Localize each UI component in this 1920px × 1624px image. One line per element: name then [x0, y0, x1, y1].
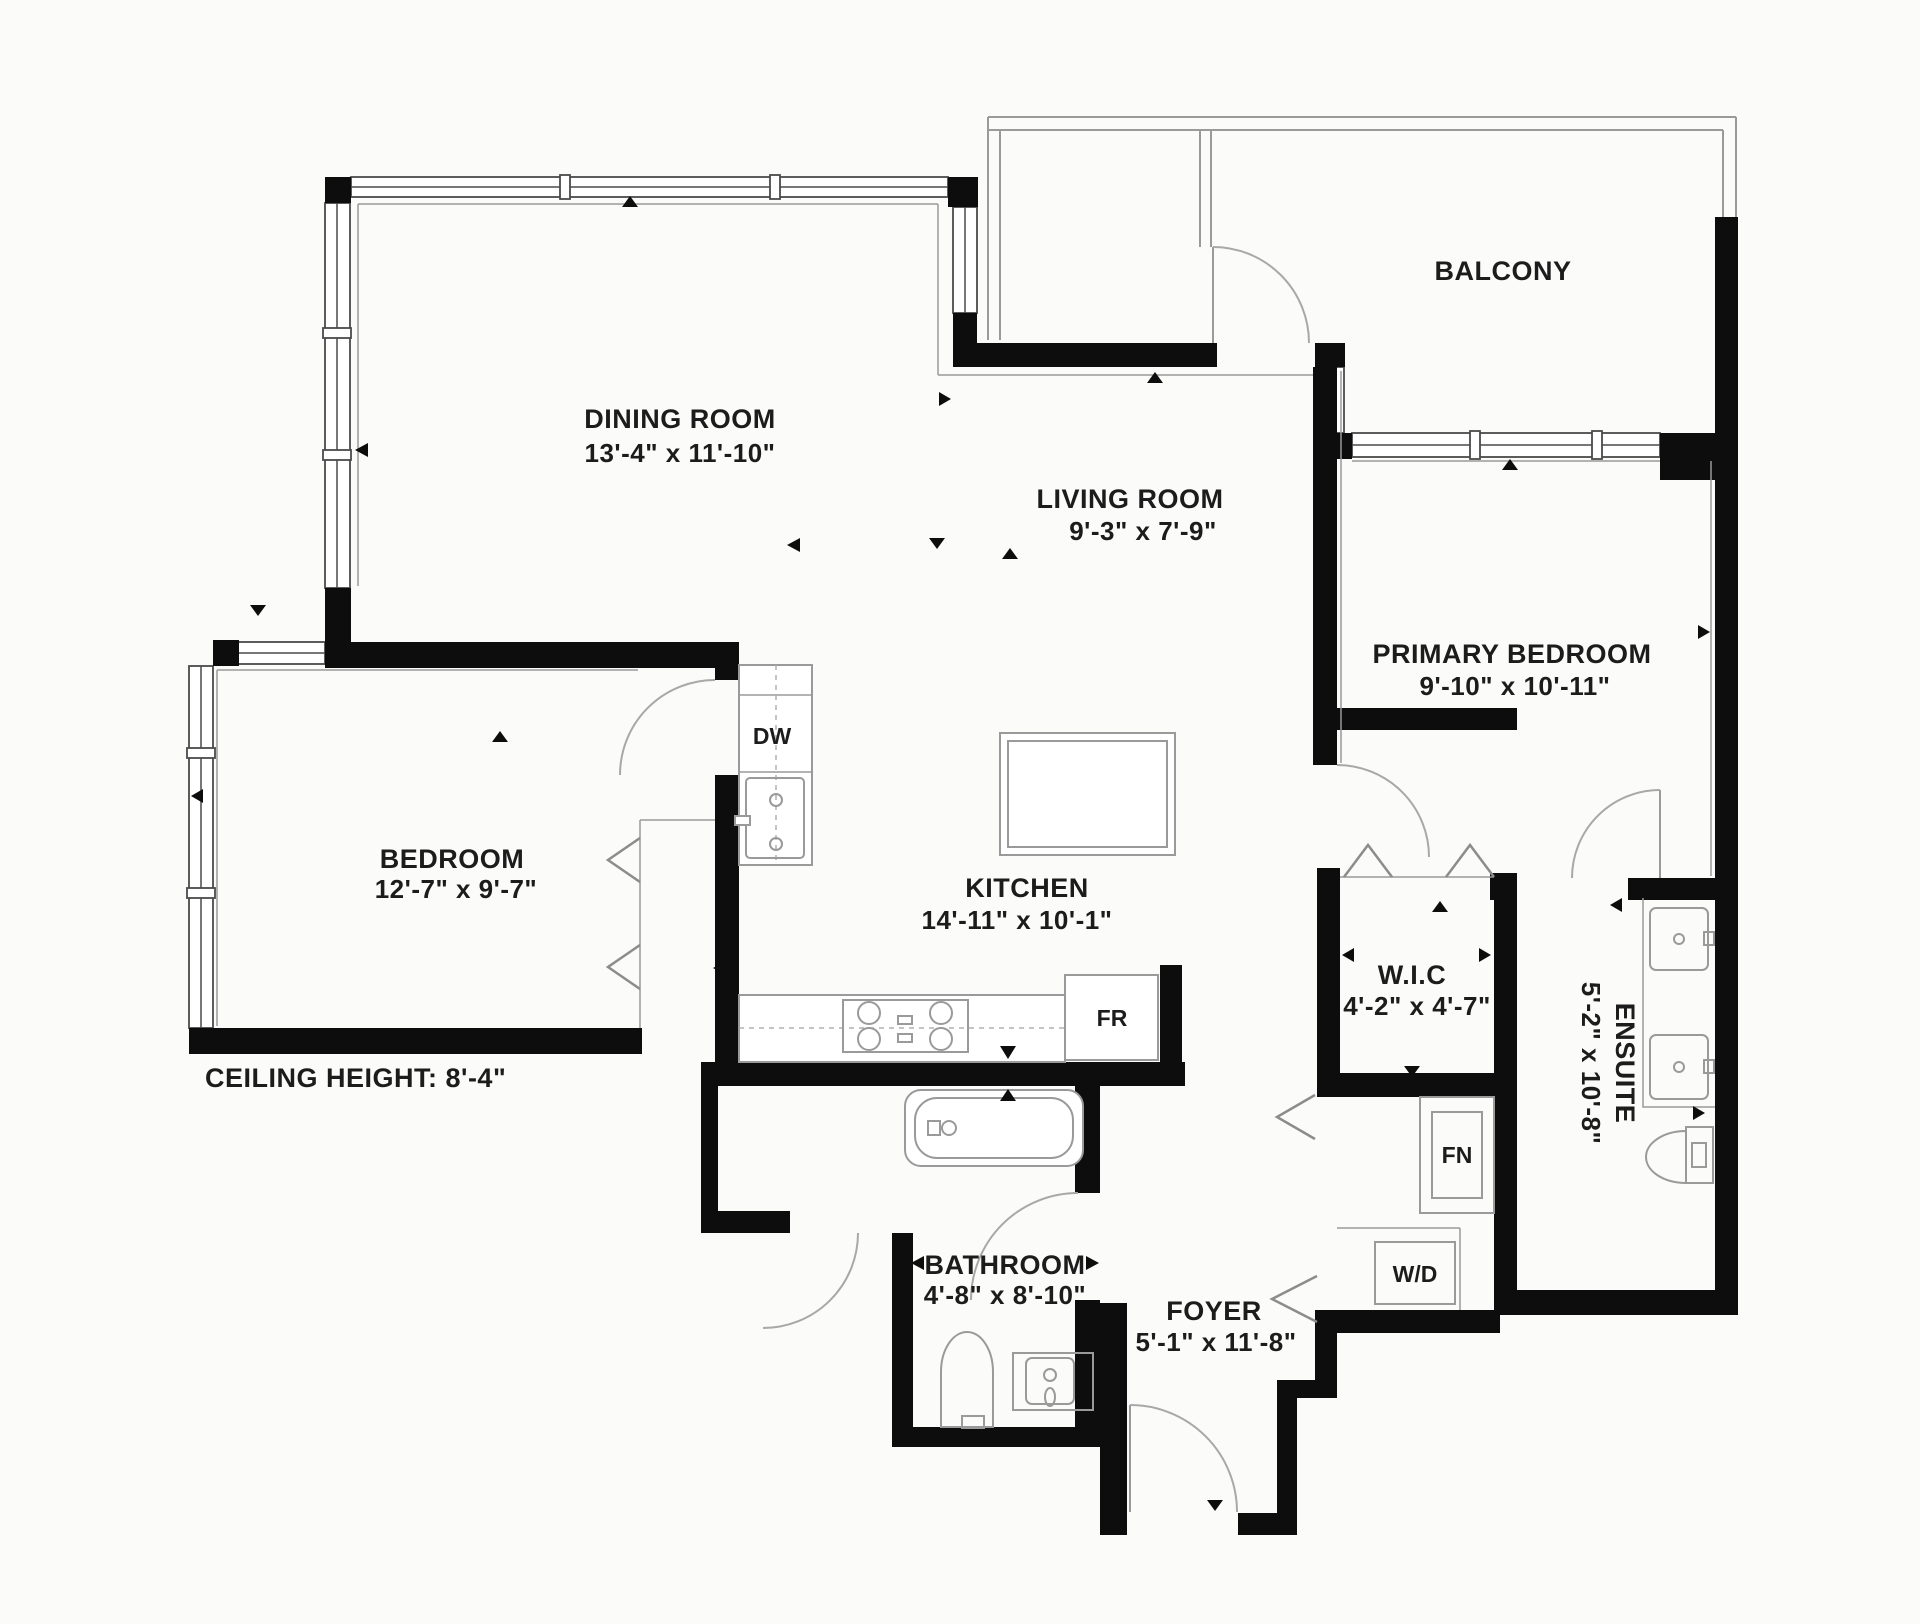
bedroom-closet-door-icon — [608, 838, 640, 882]
fridge-label: FR — [1097, 1005, 1128, 1031]
room-dims-primary-bedroom: 9'-10" x 10'-11" — [1419, 671, 1610, 701]
ensuite-door-arc — [1572, 790, 1660, 878]
room-label-primary-bedroom: PRIMARY BEDROOM — [1372, 639, 1651, 669]
room-dims-bedroom: 12'-7" x 9'-7" — [375, 874, 538, 904]
ensuite-fixtures — [1643, 898, 1715, 1183]
floor-plan-page: BALCONY DINING ROOM 13'-4" x 11'-10" LIV… — [0, 0, 1920, 1624]
kitchen-fixtures — [735, 665, 1175, 1062]
room-dims-living: 9'-3" x 7'-9" — [1069, 516, 1217, 546]
bedroom-closet-door-icon — [608, 945, 640, 989]
room-label-wic: W.I.C — [1378, 960, 1447, 990]
room-dims-foyer: 5'-1" x 11'-8" — [1135, 1327, 1296, 1357]
kitchen-island — [1000, 733, 1175, 855]
bedroom-door-arc — [620, 680, 715, 775]
furnace-label: FN — [1442, 1142, 1473, 1168]
room-label-bathroom: BATHROOM — [925, 1250, 1086, 1280]
room-label-dining: DINING ROOM — [584, 404, 776, 434]
balcony-door-arc — [1213, 247, 1309, 343]
entry-door-arc — [1130, 1405, 1237, 1512]
balcony-outline — [988, 117, 1736, 340]
room-dims-kitchen: 14'-11" x 10'-1" — [921, 905, 1112, 935]
primary-bedroom-door-arc — [1337, 765, 1429, 857]
wic-bifold-door-icon — [1446, 845, 1494, 877]
kitchen-faucet-icon — [735, 816, 750, 825]
room-label-balcony: BALCONY — [1435, 256, 1572, 286]
toilet-icon — [941, 1332, 993, 1427]
ensuite-toilet-icon — [1646, 1131, 1686, 1183]
room-dims-ensuite: 5'-2" x 10'-8" — [1576, 982, 1606, 1145]
wic-bifold-door-icon — [1344, 845, 1392, 877]
room-label-living: LIVING ROOM — [1037, 484, 1224, 514]
washer-dryer-label: W/D — [1393, 1261, 1438, 1287]
room-dims-dining: 13'-4" x 11'-10" — [584, 438, 775, 468]
dishwasher-label: DW — [753, 723, 792, 749]
room-label-bedroom: BEDROOM — [380, 844, 525, 874]
floor-plan-canvas: BALCONY DINING ROOM 13'-4" x 11'-10" LIV… — [0, 0, 1920, 1624]
room-dims-bathroom: 4'-8" x 8'-10" — [924, 1280, 1087, 1310]
ensuite-toilet-tank — [1686, 1127, 1713, 1183]
ensuite-sink — [1650, 1035, 1708, 1099]
wd-closet-door-icon — [1272, 1276, 1317, 1322]
room-dims-wic: 4'-2" x 4'-7" — [1343, 991, 1491, 1021]
fn-closet-door-icon — [1277, 1095, 1315, 1139]
hall-door-arc — [763, 1233, 858, 1328]
room-label-foyer: FOYER — [1166, 1296, 1262, 1326]
room-label-kitchen: KITCHEN — [965, 873, 1089, 903]
room-label-ensuite: ENSUITE — [1610, 1003, 1640, 1124]
ensuite-sink — [1650, 908, 1708, 970]
ceiling-height-note: CEILING HEIGHT: 8'-4" — [205, 1063, 506, 1093]
